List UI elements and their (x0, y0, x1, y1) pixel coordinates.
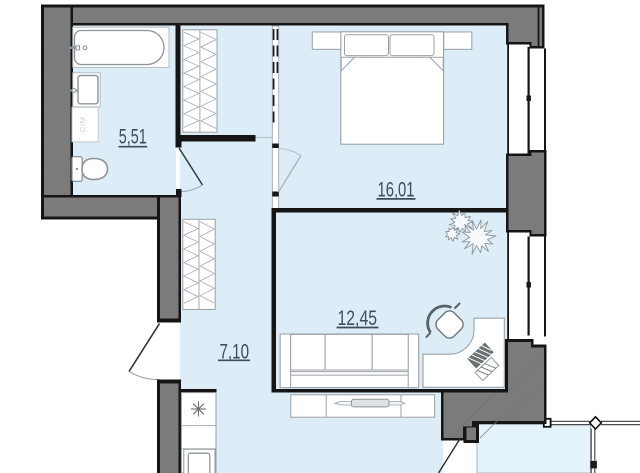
svg-text:5,51: 5,51 (119, 126, 147, 149)
svg-text:СтМ: СтМ (78, 117, 87, 132)
svg-text:16,01: 16,01 (378, 178, 415, 201)
